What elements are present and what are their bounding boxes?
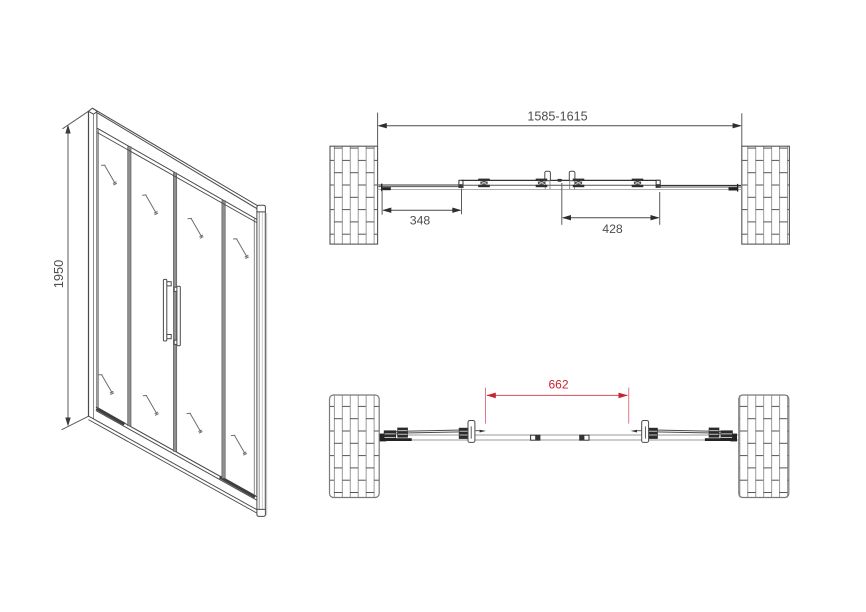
svg-text:428: 428 (602, 222, 623, 236)
svg-text:348: 348 (410, 214, 431, 228)
svg-text:662: 662 (548, 377, 568, 391)
svg-text:1585-1615: 1585-1615 (527, 110, 587, 124)
svg-text:1950: 1950 (51, 260, 66, 288)
